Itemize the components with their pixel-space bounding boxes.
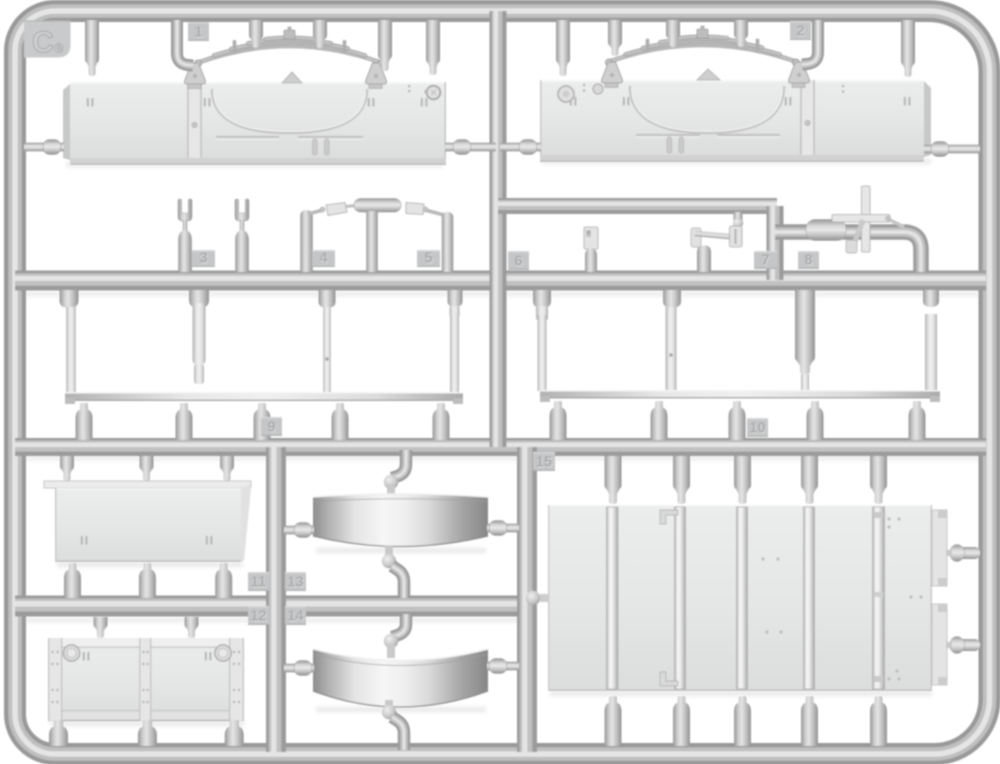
svg-text:6: 6 — [514, 254, 522, 270]
svg-text:1: 1 — [194, 25, 202, 41]
svg-text:7: 7 — [761, 253, 769, 269]
svg-text:12: 12 — [250, 609, 266, 625]
svg-text:9: 9 — [267, 420, 275, 436]
svg-text:14: 14 — [287, 609, 303, 625]
svg-text:8: 8 — [804, 253, 812, 269]
svg-text:C: C — [32, 26, 54, 59]
svg-text:2: 2 — [796, 24, 804, 40]
svg-text:15: 15 — [536, 455, 552, 471]
svg-text:11: 11 — [251, 575, 266, 591]
svg-text:10: 10 — [749, 421, 765, 437]
svg-text:4: 4 — [319, 251, 327, 267]
svg-text:3: 3 — [199, 251, 207, 267]
svg-text:13: 13 — [287, 575, 303, 591]
svg-text:e: e — [54, 38, 63, 57]
svg-text:5: 5 — [424, 251, 432, 267]
